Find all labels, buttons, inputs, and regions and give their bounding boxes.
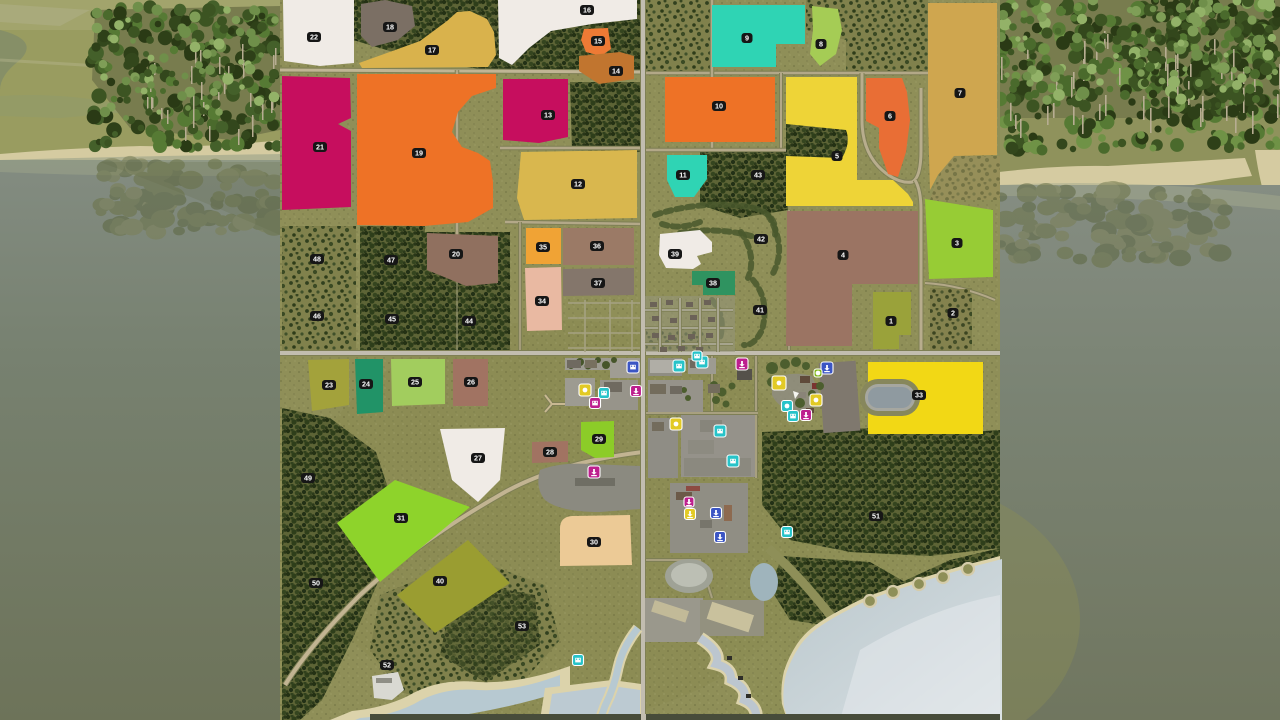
svg-text:14: 14 [612,67,620,76]
svg-text:28: 28 [546,448,554,457]
svg-text:13: 13 [544,111,552,120]
svg-text:31: 31 [397,514,405,523]
svg-text:1: 1 [889,317,893,326]
svg-text:23: 23 [325,381,333,390]
svg-text:10: 10 [715,102,723,111]
svg-text:52: 52 [383,661,391,670]
svg-text:53: 53 [518,622,526,631]
svg-text:50: 50 [312,579,320,588]
svg-text:22: 22 [310,33,318,42]
svg-text:21: 21 [316,143,324,152]
svg-text:11: 11 [679,171,687,180]
svg-text:24: 24 [362,380,370,389]
svg-text:9: 9 [745,34,749,43]
svg-text:20: 20 [452,250,460,259]
svg-text:42: 42 [757,235,765,244]
svg-text:36: 36 [593,242,601,251]
svg-text:3: 3 [955,239,959,248]
svg-text:35: 35 [539,243,547,252]
svg-text:29: 29 [595,435,603,444]
svg-text:26: 26 [467,378,475,387]
svg-text:34: 34 [538,297,546,306]
svg-text:12: 12 [574,180,582,189]
svg-text:18: 18 [386,23,394,32]
svg-text:47: 47 [387,256,395,265]
svg-text:4: 4 [841,251,845,260]
svg-text:43: 43 [754,171,762,180]
svg-text:51: 51 [872,512,880,521]
svg-text:41: 41 [756,306,764,315]
svg-text:2: 2 [951,309,955,318]
svg-text:33: 33 [915,391,923,400]
svg-text:6: 6 [888,112,892,121]
svg-text:7: 7 [958,89,962,98]
svg-text:39: 39 [671,250,679,259]
svg-text:5: 5 [835,152,839,161]
svg-text:37: 37 [594,279,602,288]
svg-text:46: 46 [313,312,321,321]
svg-text:44: 44 [465,317,473,326]
svg-text:15: 15 [594,37,602,46]
svg-text:16: 16 [583,6,591,15]
svg-text:45: 45 [388,315,396,324]
svg-text:19: 19 [415,149,423,158]
svg-text:27: 27 [474,454,482,463]
svg-text:40: 40 [436,577,444,586]
svg-text:8: 8 [819,40,823,49]
svg-text:30: 30 [590,538,598,547]
svg-text:38: 38 [709,279,717,288]
svg-text:49: 49 [304,474,312,483]
svg-text:17: 17 [428,46,436,55]
svg-text:48: 48 [313,255,321,264]
svg-text:25: 25 [411,378,419,387]
